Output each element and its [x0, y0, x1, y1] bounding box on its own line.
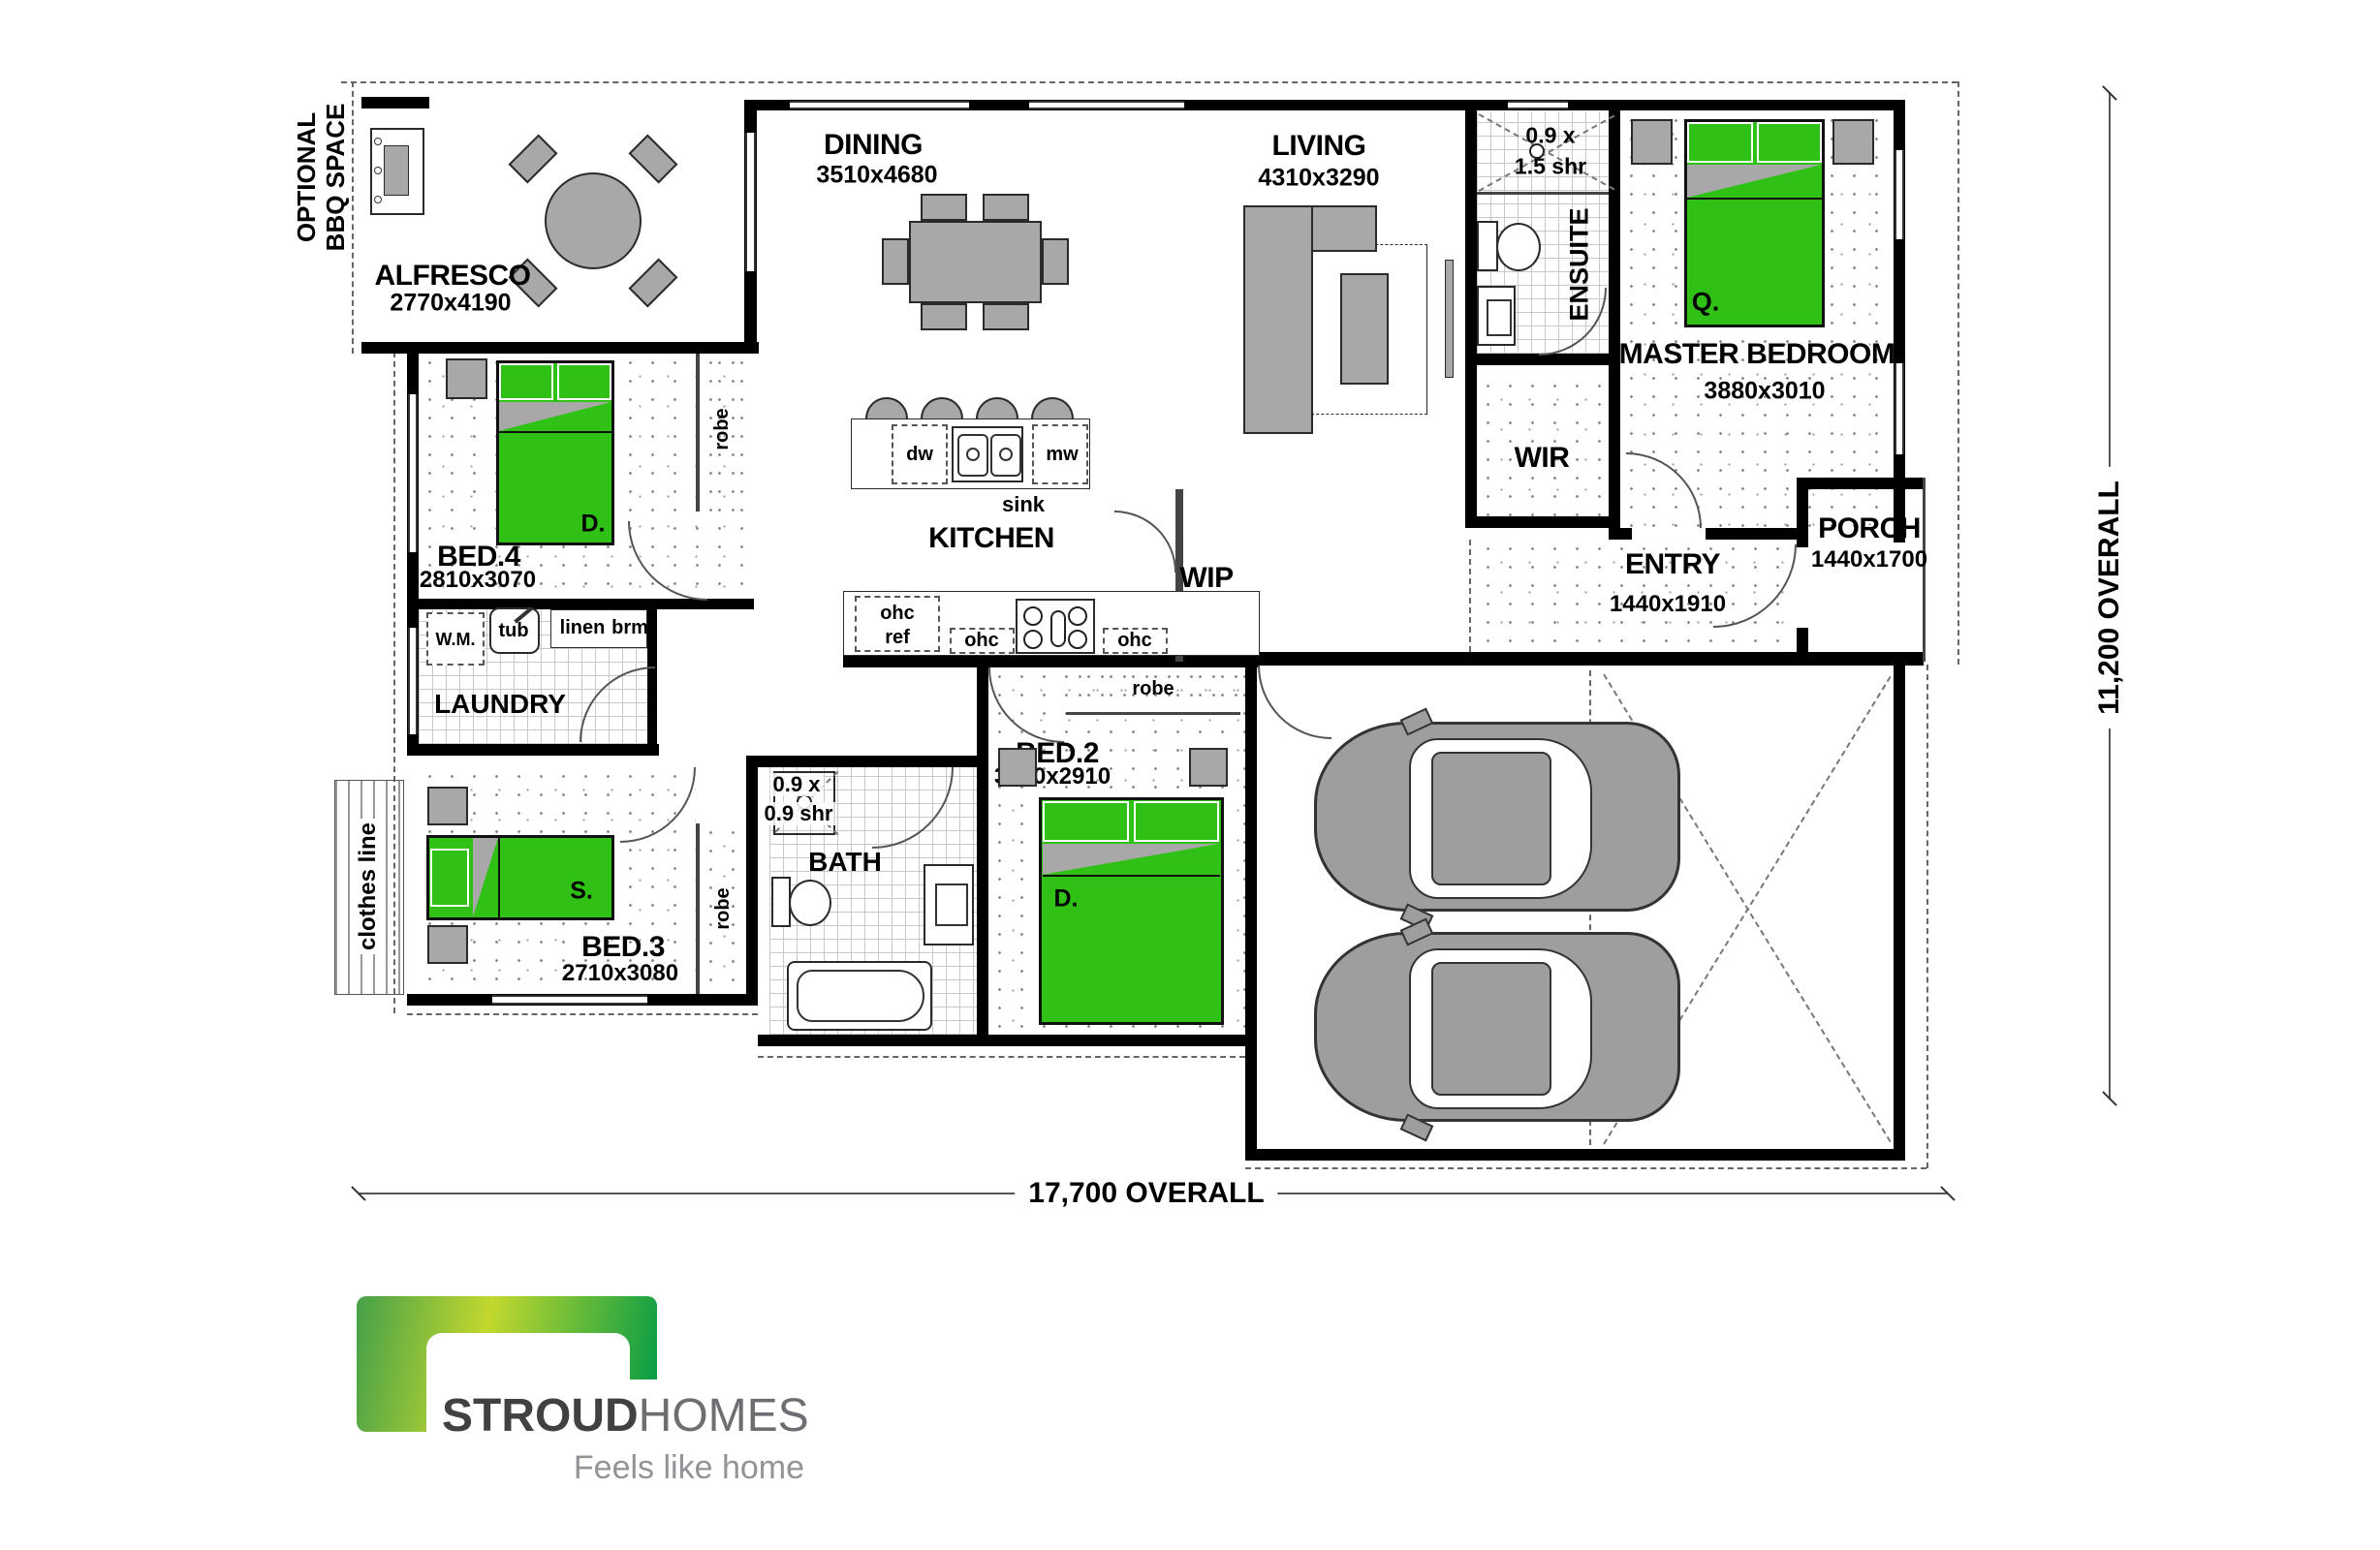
ref-label: ref [885, 628, 910, 647]
wall-porch-front [1797, 478, 1808, 547]
bed3-label: BED.3 [581, 933, 665, 962]
alfresco-dims: 2770x4190 [390, 292, 511, 316]
wall-bed2-bottom [977, 1035, 1257, 1046]
eave-right-lower [1926, 665, 1928, 1168]
bed3-side-table [427, 925, 468, 964]
dining-label: DINING [824, 131, 923, 160]
overall-width-label: 17,700 OVERALL [1015, 1177, 1277, 1210]
porch-label: PORCH [1818, 514, 1921, 543]
window-master-right2 [1895, 363, 1904, 454]
wall-garage-left [1245, 652, 1257, 1161]
robe-bed4-front [696, 354, 700, 511]
logo-brand-secondary: HOMES [639, 1390, 809, 1441]
window-dining-top [790, 101, 969, 109]
ensuite-toilet-cistern [1477, 221, 1498, 271]
bed3-dims: 2710x3080 [562, 962, 678, 985]
ensuite-vanity [1477, 286, 1516, 346]
dining-chair [921, 194, 967, 221]
coffee-table [1340, 273, 1389, 385]
wall-laundry-bed3 [407, 744, 659, 756]
wall-garage-bottom [1245, 1149, 1905, 1161]
wip-label: WIP [1179, 564, 1233, 593]
kitchen-stool [976, 397, 1018, 418]
entry-bulkhead [1469, 540, 1471, 652]
dining-table [909, 221, 1042, 303]
logo-brand-primary: STROUD [442, 1390, 639, 1441]
wall-bed3-right [746, 756, 758, 1006]
robe-bed2-front [1066, 712, 1240, 715]
car [1314, 932, 1680, 1122]
bed3-bed-tag: S. [570, 880, 593, 904]
bed2-bed-fold [1043, 844, 1220, 877]
alfresco-chair [629, 259, 678, 308]
bed2-bed-tag: D. [1054, 887, 1079, 912]
alfresco-table [545, 172, 642, 269]
window-dining-left [745, 133, 756, 271]
dining-chair [921, 303, 967, 330]
floor-plan-sheet: ALFRESCO 2770x4190 OPTIONAL BBQ SPACE DI… [0, 0, 2380, 1550]
window-living-top [1029, 101, 1184, 109]
master-label: MASTER BEDROOM [1619, 340, 1895, 369]
bed4-bed-fold [499, 402, 611, 433]
bath-toilet-bowl [789, 880, 831, 926]
living-dims: 4310x3290 [1258, 167, 1379, 191]
window-bed4-left [408, 394, 418, 552]
dishwasher-label: dw [906, 445, 933, 464]
wall-bath-bottom [758, 1035, 988, 1046]
bed2-side-table [1189, 748, 1228, 787]
tv [1445, 260, 1454, 378]
window-bed3-bottom [492, 995, 647, 1005]
ensuite-label: ENSUITE [1567, 207, 1593, 321]
bed2-robe-label: robe [1132, 679, 1174, 698]
eave-bottom-garage [1245, 1167, 1926, 1169]
alfresco-label: ALFRESCO [375, 262, 531, 291]
master-dims: 3880x3010 [1704, 380, 1825, 404]
bath-shower-size-2: 0.9 shr [762, 802, 836, 825]
master-side-table [1832, 119, 1874, 165]
eave-right-upper [1957, 81, 1959, 665]
wall-bed2-left [977, 667, 988, 726]
bed3-bed-fold [473, 838, 500, 917]
kitchen-stool [921, 397, 963, 418]
bed3-side-table [427, 787, 468, 825]
ensuite-shower-size-2: 1.5 shr [1515, 156, 1586, 178]
wall-garage-top [1245, 652, 1924, 666]
wall-ensuite-right [1609, 109, 1620, 540]
dining-chair [983, 303, 1029, 330]
ohc-label: ohc [964, 631, 999, 650]
ensuite-toilet-bowl [1496, 223, 1541, 271]
shower-screen-ensuite [1477, 192, 1609, 195]
eave-bottom-bath [758, 1056, 1245, 1058]
bed2-side-table [998, 748, 1037, 787]
eave-bottom-bed3 [407, 1013, 758, 1015]
eave-top [341, 81, 1957, 83]
wall-garage-right [1894, 666, 1905, 1161]
bed4-pillow [499, 363, 553, 400]
window-master-right1 [1895, 150, 1904, 239]
entry-dims: 1440x1910 [1610, 593, 1726, 616]
bed3-pillow [430, 849, 469, 907]
eave-alfresco-left [352, 81, 354, 354]
microwave-label: mw [1046, 445, 1078, 464]
dining-chair [1042, 238, 1069, 285]
robe-bed3-front [696, 823, 700, 994]
bed4-robe-label: robe [712, 408, 732, 449]
sink-label: sink [1002, 494, 1045, 515]
stroud-homes-logo: STROUDHOMES Feels like home [357, 1296, 812, 1490]
ohc-label: ohc [1117, 631, 1152, 650]
master-pillow [1687, 122, 1753, 163]
bbq [370, 128, 424, 215]
alfresco-chair [629, 135, 678, 184]
logo-brand: STROUDHOMES [442, 1389, 809, 1442]
kitchen-label: KITCHEN [928, 524, 1054, 553]
bbq-burner [384, 145, 409, 196]
clothes-line-label: clothes line [355, 819, 382, 954]
wall-porch-front2 [1797, 628, 1808, 659]
wall-bed2-left2 [977, 774, 988, 1046]
bath-vanity [924, 864, 974, 945]
bed4-pillow [557, 363, 611, 400]
wall-kitchen-bench-back [843, 656, 1260, 667]
sofa-left [1243, 205, 1313, 434]
ohc-label: ohc [880, 604, 915, 623]
ensuite-shower-size-1: 0.9 x [1525, 125, 1575, 147]
door-wip [1114, 511, 1176, 573]
wir-label: WIR [1515, 444, 1570, 473]
bed4-bed-tag: D. [581, 512, 606, 537]
brm-label: brm [611, 618, 648, 637]
wall-master-bottom [1706, 528, 1804, 540]
wall-porch-top [1797, 478, 1925, 489]
wall-master-bottom-nib [1620, 528, 1632, 540]
wall-bath-top [746, 756, 977, 767]
wall-ensuite-left [1465, 109, 1477, 528]
logo-tagline: Feels like home [574, 1449, 804, 1487]
bed2-pillow [1134, 801, 1219, 842]
master-bed-tag: Q. [1692, 290, 1720, 316]
dining-chair [882, 238, 909, 285]
dining-dims: 3510x4680 [816, 164, 937, 188]
optional-bbq-label-1: OPTIONAL [294, 112, 319, 242]
linen-label: linen [560, 618, 606, 637]
master-bed-fold [1687, 165, 1822, 200]
master-side-table [1631, 119, 1673, 165]
alfresco-chair [509, 135, 558, 184]
kitchen-sink [952, 426, 1023, 482]
master-pillow [1757, 122, 1822, 163]
bath-shower-size-1: 0.9 x [770, 773, 824, 796]
overall-height-label: 11,200 OVERALL [2093, 467, 2126, 728]
bathtub [787, 961, 932, 1031]
bed4-dims: 2810x3070 [420, 569, 536, 592]
entry-label: ENTRY [1625, 550, 1720, 579]
porch-dims: 1440x1700 [1811, 548, 1927, 572]
bed3-robe-label: robe [713, 887, 733, 929]
wall-bed4-top [361, 342, 759, 354]
wall-wir-bottom [1465, 516, 1620, 528]
optional-bbq-label-2: BBQ SPACE [323, 104, 348, 252]
wall-alfresco-post [361, 97, 429, 108]
dining-chair [983, 194, 1029, 221]
window-ensuite-top [1508, 101, 1568, 109]
bath-toilet-cistern [771, 877, 791, 927]
car [1314, 722, 1680, 912]
kitchen-stool [1031, 397, 1074, 418]
wm-label: W.M. [436, 631, 476, 648]
living-label: LIVING [1271, 132, 1365, 161]
tub-label: tub [498, 621, 528, 640]
bed4-side-table [446, 358, 487, 399]
kitchen-stool [865, 397, 908, 418]
door-laundry-left [408, 628, 418, 734]
door-garage-entry [1258, 666, 1331, 739]
cooktop [1016, 599, 1095, 654]
bath-label: BATH [808, 849, 882, 876]
laundry-label: LAUNDRY [434, 691, 566, 718]
bed2-pillow [1043, 801, 1129, 842]
